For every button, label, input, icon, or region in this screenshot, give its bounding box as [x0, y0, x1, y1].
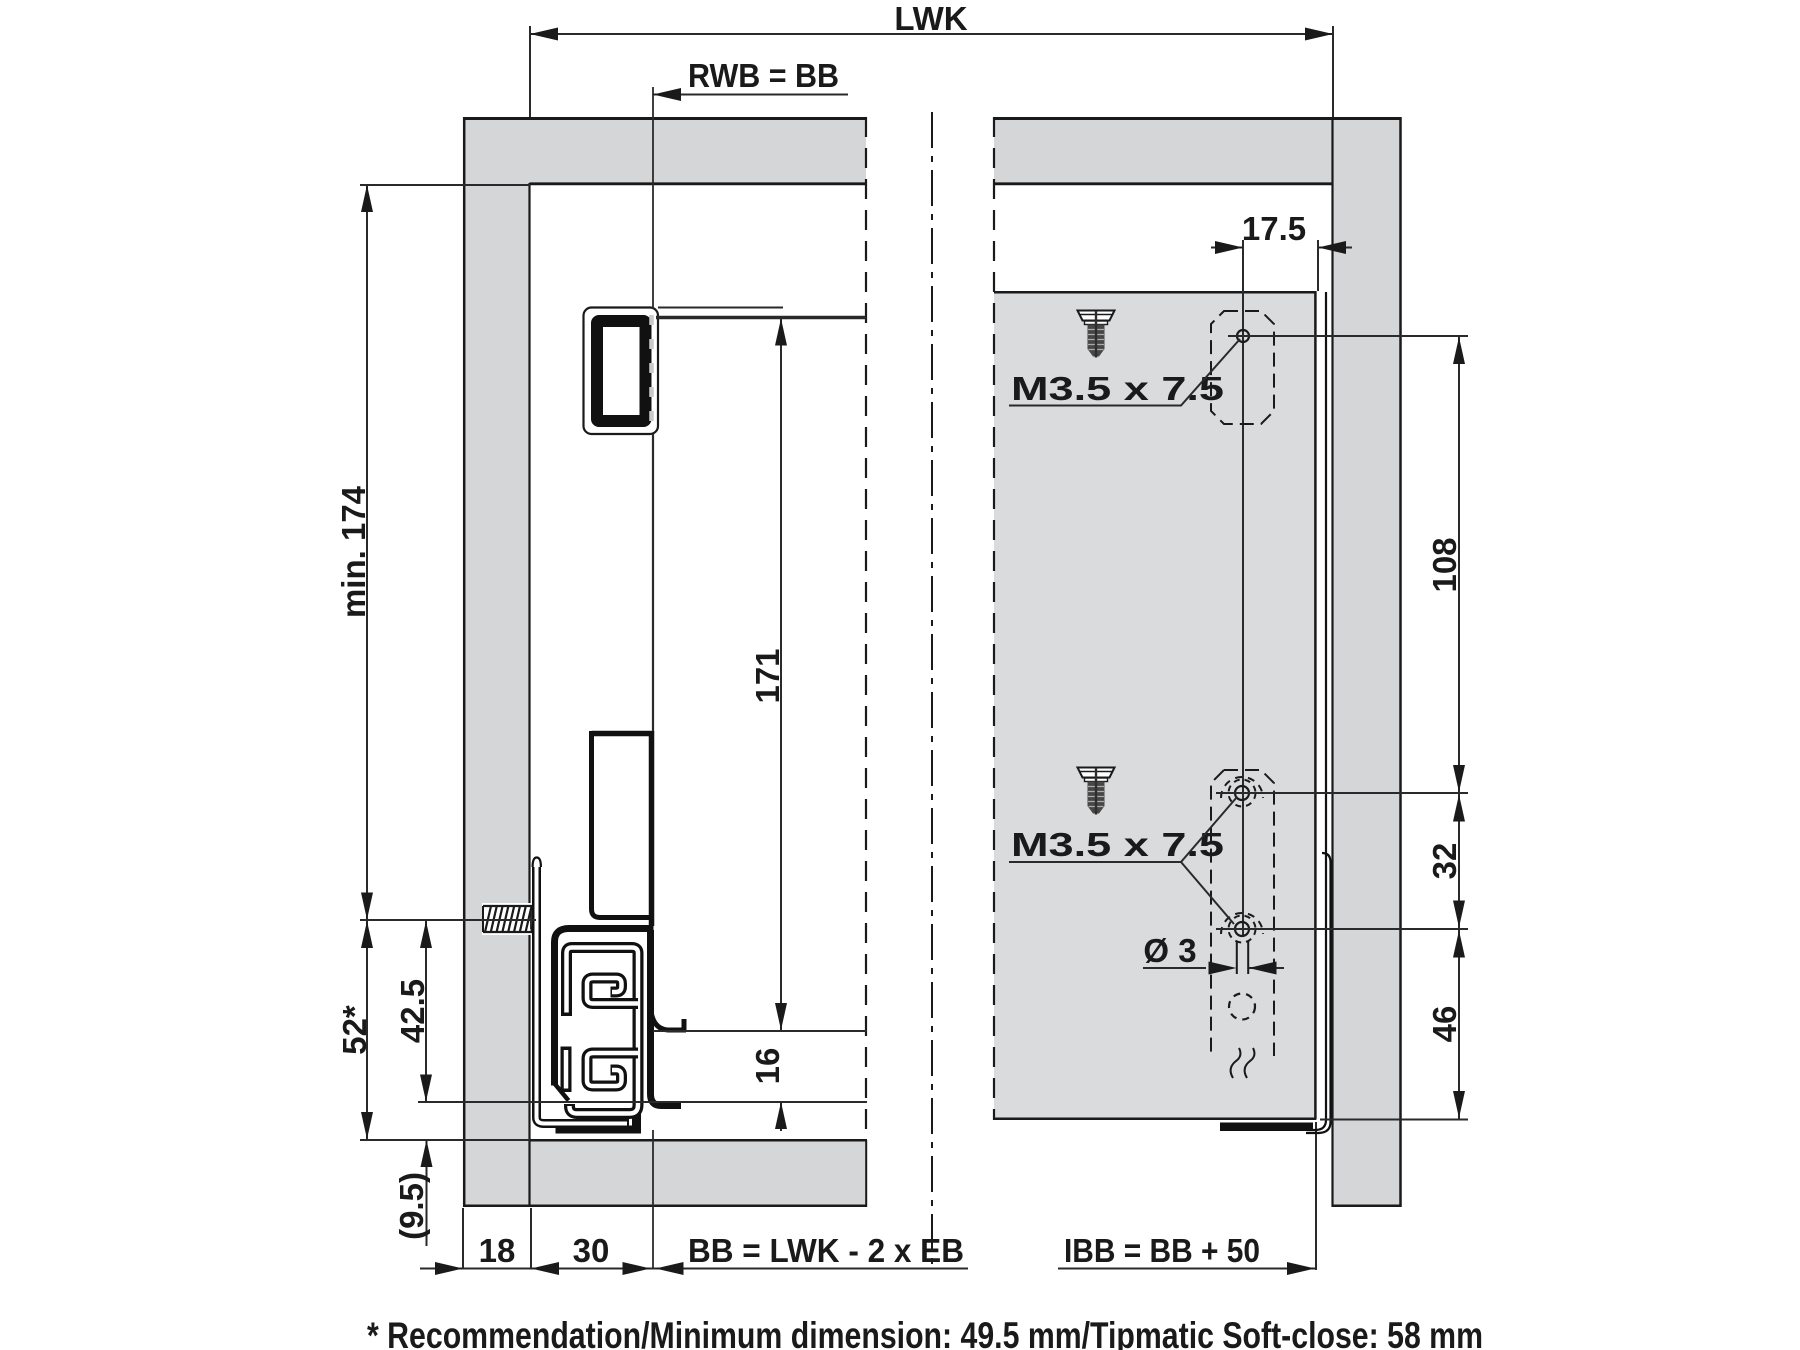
svg-text:(9.5): (9.5): [393, 1172, 430, 1240]
svg-text:17.5: 17.5: [1242, 210, 1306, 247]
svg-text:BB = LWK - 2 x EB: BB = LWK - 2 x EB: [688, 1232, 964, 1269]
svg-text:M3.5 x 7.5: M3.5 x 7.5: [1011, 826, 1224, 863]
svg-text:IBB = BB + 50: IBB = BB + 50: [1064, 1232, 1260, 1269]
svg-text:30: 30: [573, 1232, 610, 1269]
svg-text:RWB = BB: RWB = BB: [688, 57, 839, 94]
svg-text:Ø 3: Ø 3: [1143, 932, 1196, 969]
svg-text:M3.5 x 7.5: M3.5 x 7.5: [1011, 370, 1224, 407]
svg-text:16: 16: [749, 1048, 786, 1085]
svg-text:18: 18: [479, 1232, 516, 1269]
svg-text:42.5: 42.5: [394, 979, 431, 1043]
svg-text:46: 46: [1426, 1006, 1463, 1043]
svg-text:52*: 52*: [336, 1005, 373, 1055]
svg-text:LWK: LWK: [894, 0, 967, 37]
svg-text:min. 174: min. 174: [335, 485, 372, 618]
svg-text:* Recommendation/Minimum dimen: * Recommendation/Minimum dimension: 49.5…: [367, 1315, 1483, 1350]
svg-text:108: 108: [1426, 537, 1463, 592]
svg-text:32: 32: [1426, 843, 1463, 880]
svg-text:171: 171: [749, 648, 786, 703]
